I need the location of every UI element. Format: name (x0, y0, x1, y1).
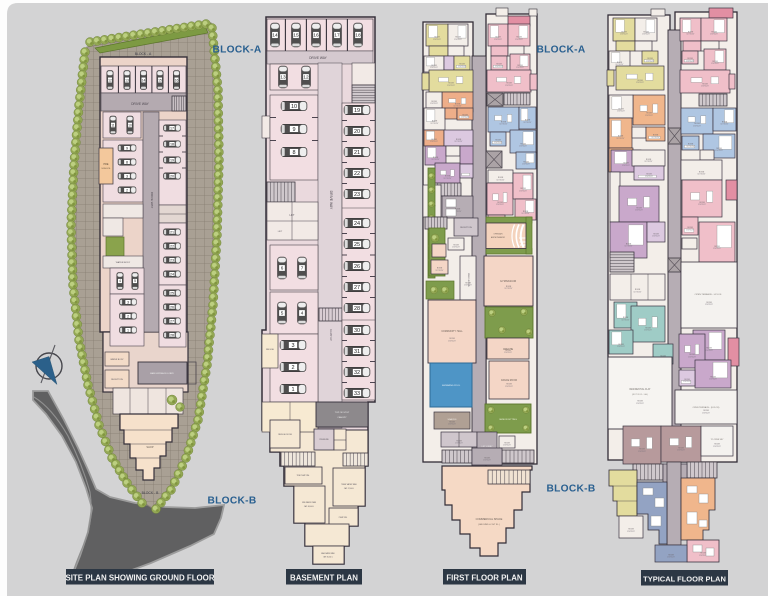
svg-text:23: 23 (170, 258, 174, 262)
svg-text:ROOM: ROOM (645, 327, 651, 329)
svg-text:BASEMENT PLAN: BASEMENT PLAN (290, 573, 358, 582)
svg-text:11'0"X12'0": 11'0"X12'0" (624, 246, 632, 248)
svg-text:11'0"X12'0": 11'0"X12'0" (621, 319, 629, 321)
svg-text:ROOM: ROOM (437, 268, 443, 270)
svg-text:ROOM: ROOM (653, 135, 659, 137)
svg-text:11'0"X12'0": 11'0"X12'0" (677, 450, 685, 452)
svg-text:11'0"X12'0": 11'0"X12'0" (496, 179, 504, 181)
svg-text:27: 27 (170, 319, 174, 323)
svg-text:11'0"X12'0": 11'0"X12'0" (667, 557, 675, 559)
svg-text:(NOT IN CL. LIA.): (NOT IN CL. LIA.) (632, 393, 648, 396)
svg-text:11'0"X12'0": 11'0"X12'0" (499, 124, 507, 126)
svg-text:5: 5 (281, 311, 284, 316)
svg-text:ROOM: ROOM (643, 31, 649, 33)
svg-text:18: 18 (355, 33, 361, 38)
svg-text:ROOM: ROOM (431, 65, 437, 67)
svg-text:13: 13 (280, 75, 286, 80)
svg-text:3: 3 (126, 174, 128, 178)
svg-text:DRIVE WAY: DRIVE WAY (150, 192, 154, 209)
svg-text:11'0"X12'0": 11'0"X12'0" (453, 106, 461, 108)
svg-text:11'0"X12'0": 11'0"X12'0" (698, 204, 706, 206)
svg-text:ROOM: ROOM (703, 410, 709, 412)
svg-text:MAIN ENTRANCE LOBBY: MAIN ENTRANCE LOBBY (150, 372, 174, 375)
svg-text:11'0"X12'0": 11'0"X12'0" (430, 103, 438, 105)
svg-text:BLOCK-B: BLOCK-B (546, 484, 595, 495)
svg-text:ROOM: ROOM (497, 202, 503, 204)
svg-text:ROOM: ROOM (506, 384, 512, 386)
svg-text:PRE: PRE (104, 163, 109, 166)
svg-text:2: 2 (291, 365, 294, 371)
svg-text:ROOM: ROOM (449, 338, 455, 340)
svg-text:15: 15 (293, 33, 299, 38)
svg-text:11'0"X12'0": 11'0"X12'0" (713, 248, 721, 250)
svg-text:11'0"X12'0": 11'0"X12'0" (616, 138, 624, 140)
svg-text:11'0"X12'0": 11'0"X12'0" (715, 150, 723, 152)
svg-text:4: 4 (119, 279, 121, 283)
svg-text:ROOM: ROOM (431, 139, 437, 141)
svg-text:33: 33 (354, 391, 360, 397)
svg-text:11'0"X12'0": 11'0"X12'0" (430, 123, 438, 125)
svg-text:11'0"X12'0": 11'0"X12'0" (686, 33, 694, 35)
svg-text:11'0"X12'0": 11'0"X12'0" (458, 66, 466, 68)
svg-text:ROOM: ROOM (455, 37, 461, 39)
svg-text:10: 10 (291, 104, 297, 110)
svg-text:CRECHE: CRECHE (503, 348, 514, 351)
svg-text:ROOM: ROOM (699, 171, 705, 173)
svg-text:ROOM: ROOM (699, 202, 705, 204)
svg-text:12: 12 (108, 78, 112, 82)
svg-text:ROOM: ROOM (687, 227, 693, 229)
svg-text:11'0"X12'0": 11'0"X12'0" (519, 145, 527, 147)
svg-text:11'0"X12'0": 11'0"X12'0" (430, 141, 438, 143)
svg-text:ROOM: ROOM (456, 440, 462, 442)
svg-text:SWIMMING POOL: SWIMMING POOL (442, 385, 461, 387)
svg-text:22: 22 (354, 171, 360, 177)
svg-text:31: 31 (354, 349, 360, 355)
svg-text:23: 23 (354, 192, 360, 198)
svg-text:11'0"X12'0": 11'0"X12'0" (431, 159, 439, 161)
svg-text:ROOM: ROOM (617, 62, 623, 64)
svg-text:11'0"X12'0": 11'0"X12'0" (505, 85, 513, 87)
svg-text:ROOM: ROOM (495, 37, 501, 39)
svg-text:ROOM: ROOM (716, 148, 722, 150)
svg-text:14: 14 (272, 33, 278, 38)
svg-text:11'0"X12'0": 11'0"X12'0" (494, 39, 502, 41)
svg-text:11'0"X12'0": 11'0"X12'0" (452, 247, 460, 249)
svg-text:28: 28 (170, 333, 174, 337)
svg-text:RESIDENTIAL FLAT: RESIDENTIAL FLAT (629, 388, 651, 391)
svg-text:11'0"X12'0": 11'0"X12'0" (461, 117, 469, 119)
svg-text:30: 30 (354, 328, 360, 334)
svg-text:ROOM: ROOM (432, 121, 438, 123)
svg-text:11'0"X12'0": 11'0"X12'0" (433, 39, 441, 41)
svg-text:PUMP RM.: PUMP RM. (339, 517, 348, 519)
svg-text:COMMERCIAL SPACE: COMMERCIAL SPACE (476, 517, 503, 521)
svg-text:11'0"X12'0": 11'0"X12'0" (686, 229, 694, 231)
svg-text:ROOM: ROOM (637, 401, 643, 403)
svg-text:11'0"X12'0": 11'0"X12'0" (645, 176, 653, 178)
svg-text:ROOM: ROOM (653, 233, 659, 235)
svg-text:ROOM: ROOM (448, 83, 454, 85)
svg-text:11'0"X12'0": 11'0"X12'0" (644, 161, 652, 163)
svg-text:16: 16 (313, 33, 319, 38)
svg-text:20: 20 (354, 129, 360, 135)
svg-text:11'0"X12'0": 11'0"X12'0" (454, 39, 462, 41)
svg-text:BLOCK-B: BLOCK-B (207, 496, 256, 507)
svg-text:16: 16 (175, 78, 179, 82)
svg-text:ROOM: ROOM (455, 103, 461, 105)
svg-text:ROOM: ROOM (431, 101, 437, 103)
svg-text:24: 24 (354, 221, 360, 227)
svg-text:25: 25 (170, 291, 174, 295)
svg-text:TYPICAL FLOOR PLAN: TYPICAL FLOOR PLAN (643, 574, 726, 583)
svg-text:11'0"X12'0": 11'0"X12'0" (705, 350, 713, 352)
svg-text:ROOM: ROOM (646, 113, 652, 115)
svg-text:1: 1 (127, 328, 129, 332)
svg-text:ROOM: ROOM (484, 458, 490, 460)
svg-text:CANOPY: CANOPY (337, 416, 347, 419)
svg-text:11'0"X12'0": 11'0"X12'0" (516, 67, 524, 69)
svg-text:5: 5 (134, 279, 136, 283)
svg-text:24: 24 (170, 272, 174, 276)
svg-text:ROOM: ROOM (688, 144, 694, 146)
svg-text:11'0"X12'0": 11'0"X12'0" (635, 210, 643, 212)
svg-text:ROOM: ROOM (706, 302, 712, 304)
svg-text:SHOP: SHOP (146, 445, 154, 449)
svg-text:ROOM: ROOM (523, 211, 529, 213)
svg-text:11'0"X12'0": 11'0"X12'0" (651, 137, 659, 139)
svg-text:ROOM: ROOM (706, 348, 712, 350)
svg-text:AMPHITHEATER: AMPHITHEATER (491, 236, 506, 239)
svg-text:ROOM: ROOM (462, 114, 468, 116)
svg-text:ROOM: ROOM (433, 157, 439, 159)
svg-text:11'0"X12'0": 11'0"X12'0" (515, 39, 523, 41)
svg-text:OPEN AIR: OPEN AIR (494, 233, 504, 236)
svg-text:ROOM: ROOM (668, 555, 674, 557)
svg-text:ROOM: ROOM (722, 121, 728, 123)
svg-text:REFUGE ROOM: REFUGE ROOM (278, 434, 292, 436)
svg-text:8: 8 (126, 160, 128, 164)
svg-text:LIFT: LIFT (278, 231, 283, 233)
svg-text:ROOM: ROOM (684, 379, 690, 381)
svg-text:DRIVE WAY: DRIVE WAY (131, 102, 149, 106)
svg-text:11'0"X12'0": 11'0"X12'0" (504, 352, 512, 354)
svg-text:DANCE ROOM: DANCE ROOM (501, 379, 517, 382)
svg-text:ROOM: ROOM (635, 289, 641, 291)
svg-text:11'0"X12'0": 11'0"X12'0" (636, 403, 644, 405)
svg-text:11'0"X12'0": 11'0"X12'0" (504, 288, 512, 290)
svg-text:SCHOOL: SCHOOL (101, 168, 111, 170)
svg-text:ROOM: ROOM (712, 61, 718, 63)
svg-text:11'0"X12'0": 11'0"X12'0" (688, 356, 696, 358)
svg-text:ROOM: ROOM (689, 354, 695, 356)
svg-text:ROOM: ROOM (445, 176, 451, 178)
svg-text:21: 21 (354, 150, 360, 156)
svg-text:11'0"X12'0": 11'0"X12'0" (496, 204, 504, 206)
svg-text:11'0"X12'0": 11'0"X12'0" (686, 146, 694, 148)
svg-text:DRIVE WAY: DRIVE WAY (309, 56, 327, 60)
svg-text:RECEPTION: RECEPTION (460, 227, 472, 229)
svg-text:RAMP UP: RAMP UP (329, 329, 333, 341)
svg-text:PRESSURE: PRESSURE (319, 439, 329, 441)
svg-text:11'0"X12'0": 11'0"X12'0" (644, 330, 652, 332)
svg-text:11'0"X12'0": 11'0"X12'0" (503, 445, 511, 447)
svg-text:SITE PLAN SHOWING GROUND FLOOR: SITE PLAN SHOWING GROUND FLOOR (65, 573, 214, 582)
svg-text:11'0"X12'0": 11'0"X12'0" (652, 236, 660, 238)
svg-text:OPEN TERRACE - UCLOS: OPEN TERRACE - UCLOS (695, 293, 722, 296)
svg-text:11'0"X12'0": 11'0"X12'0" (447, 85, 455, 87)
svg-text:ROOM: ROOM (711, 31, 717, 33)
svg-text:11'0"X12'0": 11'0"X12'0" (636, 82, 644, 84)
svg-text:DRIVE WAY: DRIVE WAY (329, 191, 333, 210)
svg-text:21: 21 (170, 230, 174, 234)
svg-text:ROOM: ROOM (434, 37, 440, 39)
svg-text:ROOM: ROOM (520, 143, 526, 145)
svg-text:27: 27 (354, 285, 360, 291)
svg-text:11'0"X12'0": 11'0"X12'0" (495, 66, 503, 68)
svg-text:20: 20 (170, 174, 174, 178)
svg-text:28: 28 (354, 306, 360, 312)
svg-text:22: 22 (170, 244, 174, 248)
svg-text:11'0"X12'0": 11'0"X12'0" (645, 115, 653, 117)
svg-text:ROOM: ROOM (646, 174, 652, 176)
svg-text:1: 1 (291, 387, 294, 393)
svg-text:ROOM: ROOM (702, 83, 708, 85)
svg-text:ROOM: ROOM (687, 58, 693, 60)
svg-text:ROOM: ROOM (618, 344, 624, 346)
svg-text:ROOM: ROOM (506, 286, 512, 288)
svg-text:11'0"X12'0": 11'0"X12'0" (435, 270, 443, 272)
svg-text:11'0"X12'0": 11'0"X12'0" (720, 123, 728, 125)
svg-text:TRE PUMP RM.: TRE PUMP RM. (296, 475, 310, 477)
svg-text:ROOM: ROOM (506, 83, 512, 85)
svg-text:11'0"X12'0": 11'0"X12'0" (494, 142, 502, 144)
svg-text:11'0"X12'0": 11'0"X12'0" (710, 33, 718, 35)
svg-text:PRE FUNCTION: PRE FUNCTION (467, 273, 469, 287)
svg-text:3: 3 (127, 300, 129, 304)
svg-text:7: 7 (301, 266, 304, 271)
svg-text:11'0"X12'0": 11'0"X12'0" (702, 412, 710, 414)
svg-text:ROOM: ROOM (517, 65, 523, 67)
svg-text:3: 3 (291, 343, 294, 349)
svg-text:REFUGE: REFUGE (266, 349, 275, 351)
svg-text:ROOM: ROOM (694, 123, 700, 125)
svg-text:11'0"X12'0": 11'0"X12'0" (519, 190, 527, 192)
svg-text:BLOCK-A: BLOCK-A (212, 45, 261, 56)
svg-text:GYMNASIUM: GYMNASIUM (500, 279, 516, 283)
svg-text:ROOM: ROOM (453, 244, 459, 246)
svg-text:14: 14 (142, 78, 146, 82)
svg-text:ROOM: ROOM (700, 553, 706, 555)
svg-text:OPEN TERRACE - (UCLOS): OPEN TERRACE - (UCLOS) (693, 406, 720, 409)
svg-text:SENIOR SITTING: SENIOR SITTING (499, 419, 517, 421)
svg-text:ROOM: ROOM (525, 120, 531, 122)
svg-text:15: 15 (158, 78, 162, 82)
svg-text:11'0"X12'0": 11'0"X12'0" (693, 125, 701, 127)
svg-text:ROOM: ROOM (496, 64, 502, 66)
svg-text:TOP OF STILT: TOP OF STILT (335, 412, 350, 414)
svg-text:SNACKS: SNACKS (448, 418, 458, 421)
svg-text:ROOM: ROOM (621, 31, 627, 33)
svg-text:ROOM: ROOM (710, 376, 716, 378)
svg-text:ROOM: ROOM (449, 422, 455, 424)
svg-text:ROOM: ROOM (636, 207, 642, 209)
svg-text:11'0"X12'0": 11'0"X12'0" (448, 340, 456, 342)
svg-text:11'0"X12'0": 11'0"X12'0" (443, 178, 451, 180)
svg-text:ROOM: ROOM (688, 31, 694, 33)
svg-text:6: 6 (281, 266, 284, 271)
svg-text:ROOM: ROOM (646, 159, 652, 161)
svg-text:WATER BODY: WATER BODY (116, 261, 131, 264)
svg-text:11'0"X12'0": 11'0"X12'0" (701, 85, 709, 87)
svg-text:11'0"X12'0": 11'0"X12'0" (521, 213, 529, 215)
svg-text:8: 8 (292, 150, 295, 156)
svg-text:17: 17 (170, 126, 174, 130)
svg-text:9: 9 (292, 127, 295, 133)
svg-text:ROOM: ROOM (678, 447, 684, 449)
svg-text:11'0"X12'0": 11'0"X12'0" (711, 63, 719, 65)
svg-text:11'0"X12'0": 11'0"X12'0" (642, 33, 650, 35)
svg-text:11'0"X12'0": 11'0"X12'0" (454, 141, 462, 143)
svg-text:11'0"X12'0": 11'0"X12'0" (448, 424, 456, 426)
svg-text:ROOM: ROOM (459, 64, 465, 66)
svg-text:ROOM: ROOM (495, 140, 501, 142)
svg-text:11: 11 (111, 123, 115, 127)
svg-text:ROOM: ROOM (523, 162, 529, 164)
svg-text:COMMUNITY HALL: COMMUNITY HALL (441, 330, 463, 333)
svg-text:TO OPEN SKY: TO OPEN SKY (711, 439, 725, 441)
svg-text:11'0"X12'0": 11'0"X12'0" (617, 110, 625, 112)
svg-text:ROOM: ROOM (626, 243, 632, 245)
svg-text:ROOM: ROOM (520, 188, 526, 190)
svg-text:11'0"X12'0": 11'0"X12'0" (620, 33, 628, 35)
svg-text:26: 26 (354, 264, 360, 270)
svg-text:ROOM: ROOM (498, 177, 504, 179)
svg-text:11'0"X12'0": 11'0"X12'0" (646, 60, 654, 62)
svg-text:ROOM: ROOM (456, 139, 462, 141)
svg-text:10: 10 (128, 123, 132, 127)
svg-text:11'0"X12'0": 11'0"X12'0" (686, 60, 694, 62)
svg-text:26: 26 (170, 305, 174, 309)
svg-text:11'0"X12'0": 11'0"X12'0" (638, 451, 646, 453)
svg-text:11'0"X12'0": 11'0"X12'0" (709, 379, 717, 381)
svg-text:2: 2 (127, 314, 129, 318)
svg-text:WATER BODY: WATER BODY (110, 358, 124, 361)
svg-text:11'0"X12'0": 11'0"X12'0" (505, 386, 513, 388)
svg-text:BLOCK-A: BLOCK-A (536, 45, 585, 56)
svg-text:BLOCK - A: BLOCK - A (135, 52, 152, 56)
svg-text:12: 12 (303, 75, 309, 80)
svg-text:11'0"X12'0": 11'0"X12'0" (522, 164, 530, 166)
svg-text:ROOM: ROOM (501, 122, 507, 124)
svg-text:ROOM: ROOM (623, 317, 629, 319)
svg-text:4: 4 (301, 311, 304, 316)
svg-text:11'0"X12'0": 11'0"X12'0" (697, 174, 705, 176)
svg-text:ROOM: ROOM (647, 58, 653, 60)
svg-text:9: 9 (126, 146, 128, 150)
svg-text:ROOM: ROOM (623, 163, 629, 165)
svg-text:18: 18 (170, 142, 174, 146)
svg-text:32: 32 (354, 370, 360, 376)
svg-text:ROOM: ROOM (618, 108, 624, 110)
svg-text:LIFT: LIFT (290, 214, 295, 217)
svg-text:13: 13 (125, 78, 129, 82)
svg-text:11'0"X12'0": 11'0"X12'0" (483, 460, 491, 462)
svg-text:ROOM: ROOM (637, 80, 643, 82)
svg-text:11'0"X12'0": 11'0"X12'0" (622, 165, 630, 167)
svg-text:17: 17 (334, 33, 340, 38)
svg-text:ROOM: ROOM (714, 444, 720, 446)
svg-text:11'0"X12'0": 11'0"X12'0" (633, 291, 641, 293)
svg-text:RECEPTION: RECEPTION (111, 379, 123, 381)
svg-text:ROOM: ROOM (714, 246, 720, 248)
svg-text:FIRST FLOOR PLAN: FIRST FLOOR PLAN (446, 573, 523, 582)
svg-text:ROOM: ROOM (639, 449, 645, 451)
svg-text:11'0"X12'0": 11'0"X12'0" (617, 346, 625, 348)
svg-text:11'0"X12'0": 11'0"X12'0" (683, 381, 691, 383)
svg-text:11'0"X12'0": 11'0"X12'0" (430, 67, 438, 69)
svg-text:ROOM: ROOM (628, 529, 634, 531)
svg-text:11'0"X12'0": 11'0"X12'0" (705, 304, 713, 306)
svg-text:ROOM: ROOM (618, 136, 624, 138)
svg-text:ROOM: ROOM (516, 37, 522, 39)
svg-text:BLOCK - B: BLOCK - B (142, 491, 160, 495)
svg-text:2: 2 (126, 188, 128, 192)
svg-text:11'0"X12'0": 11'0"X12'0" (523, 122, 531, 124)
svg-text:(GROUND & 1ST FL.): (GROUND & 1ST FL.) (478, 524, 500, 526)
svg-text:19: 19 (170, 158, 174, 162)
svg-text:25: 25 (354, 242, 360, 248)
svg-text:19: 19 (354, 108, 360, 114)
svg-text:11'0"X12'0": 11'0"X12'0" (627, 531, 635, 533)
svg-text:11'0"X12'0": 11'0"X12'0" (713, 446, 721, 448)
svg-text:ROOM: ROOM (504, 442, 510, 444)
